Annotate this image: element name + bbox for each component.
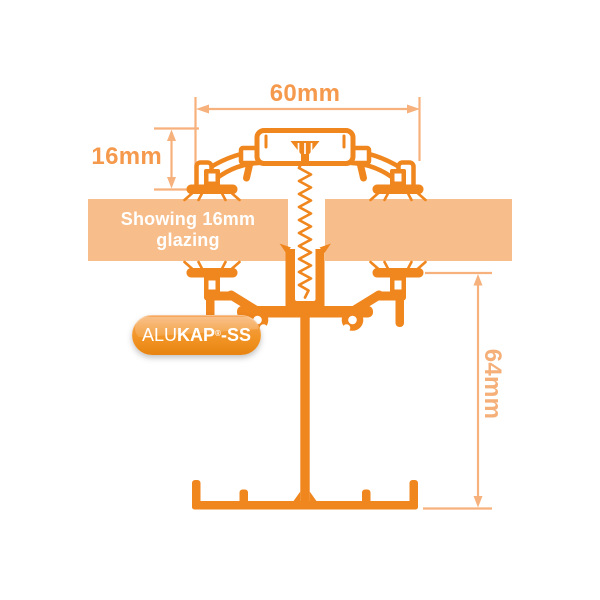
registered-trademark-icon: ®	[215, 329, 221, 338]
alukap-logo-text: ALUKAP®-SS	[142, 326, 251, 344]
alukap-logo-badge: ALUKAP®-SS	[132, 315, 261, 355]
logo-text-kap: KAP	[177, 325, 215, 345]
logo-text-ss: -SS	[221, 325, 251, 345]
gasket-upper	[185, 169, 240, 200]
central-stem	[293, 310, 318, 504]
logo-text-alu: ALU	[142, 325, 177, 345]
width-dimension-label: 60mm	[245, 82, 365, 106]
glazing-dimension-label: 16mm	[86, 145, 162, 169]
cap-jaw	[247, 165, 250, 178]
diagram-canvas: 60mm 16mm 64mm Showing 16mm glazing ALUK…	[0, 0, 600, 600]
glazing-banner-text: Showing 16mm glazing	[88, 199, 288, 261]
height-dimension-label: 64mm	[480, 344, 504, 424]
glazing-panel-right	[325, 199, 512, 261]
